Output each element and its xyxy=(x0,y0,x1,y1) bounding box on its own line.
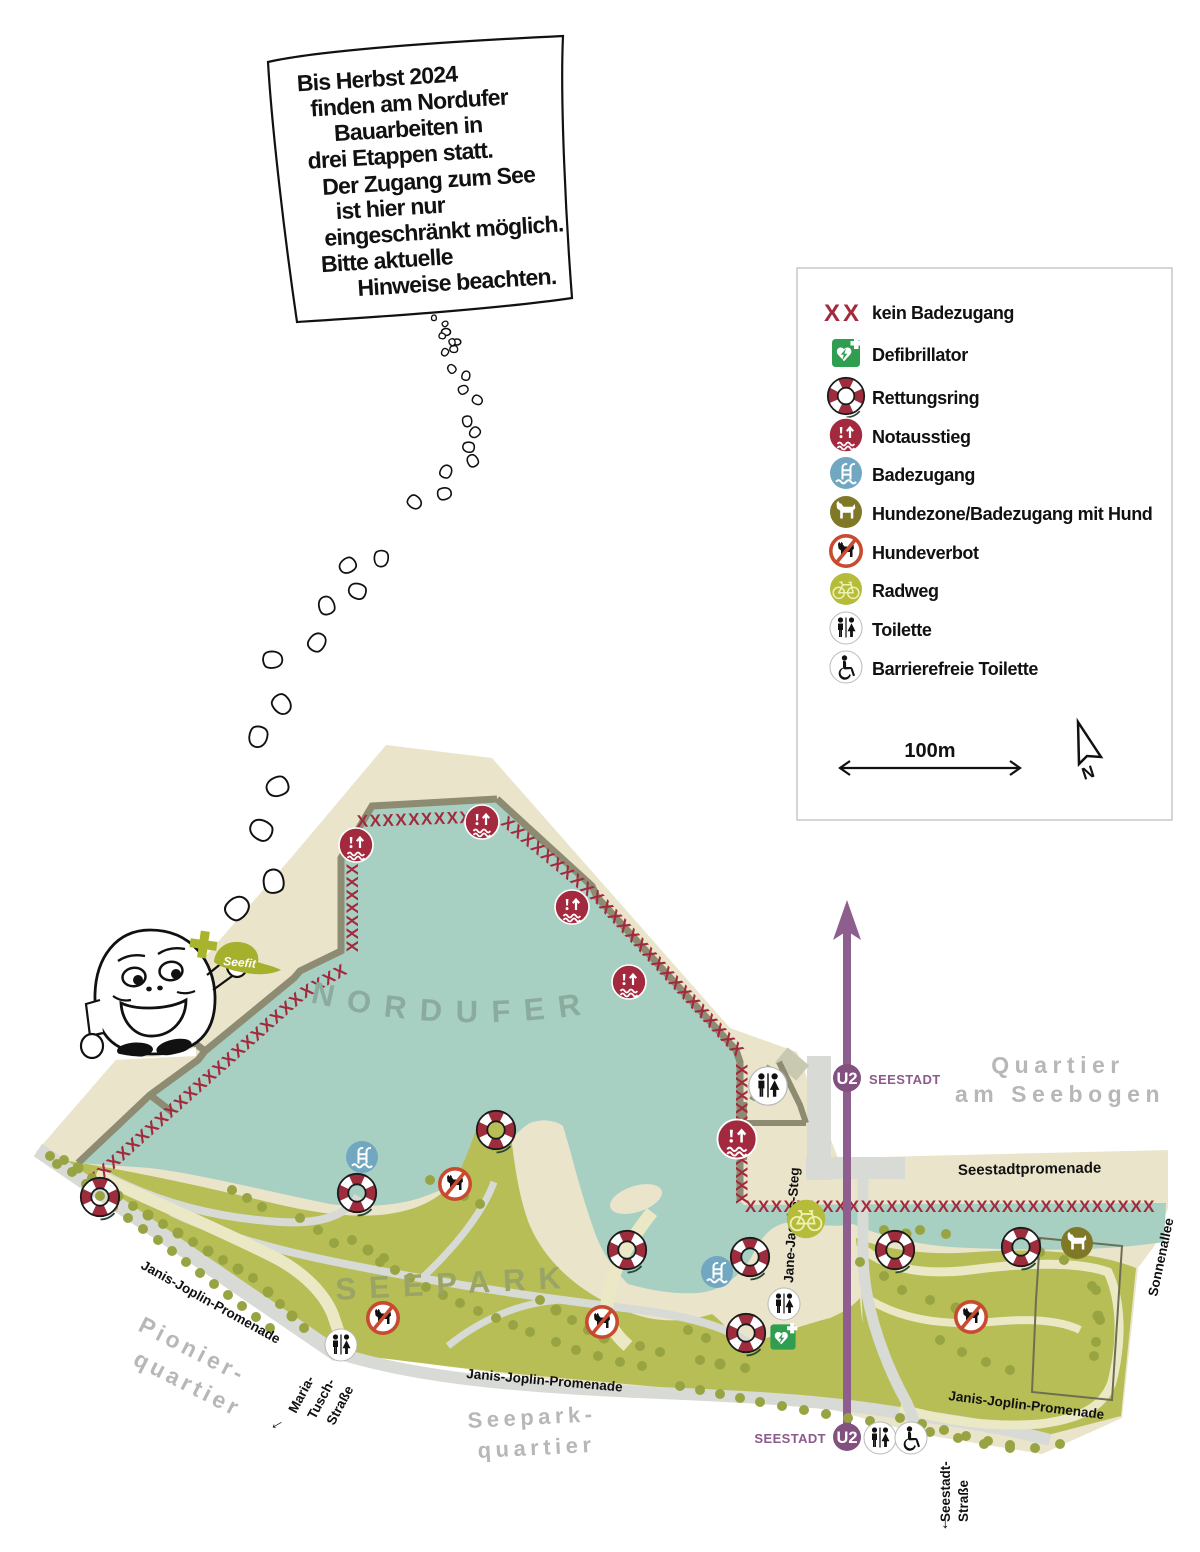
svg-text:Badezugang: Badezugang xyxy=(872,465,975,485)
svg-text:Quartier: Quartier xyxy=(991,1052,1124,1078)
svg-text:Radweg: Radweg xyxy=(872,581,939,601)
svg-text:SEESTADT: SEESTADT xyxy=(754,1431,826,1446)
svg-text:kein Badezugang: kein Badezugang xyxy=(872,303,1014,323)
svg-text:Straße: Straße xyxy=(956,1479,971,1522)
svg-text:X: X xyxy=(824,300,840,327)
svg-text:Barrierefreie Toilette: Barrierefreie Toilette xyxy=(872,659,1038,679)
svg-text:Hundezone/Badezugang mit Hund: Hundezone/Badezugang mit Hund xyxy=(872,504,1152,524)
svg-text:Hundeverbot: Hundeverbot xyxy=(872,543,979,563)
svg-text:Rettungsring: Rettungsring xyxy=(872,388,979,408)
svg-text:SEESTADT: SEESTADT xyxy=(869,1072,941,1087)
svg-text:Seefit: Seefit xyxy=(223,954,258,971)
svg-text:am Seebogen: am Seebogen xyxy=(955,1081,1165,1107)
svg-text:Seestadtpromenade: Seestadtpromenade xyxy=(958,1159,1102,1178)
svg-text:Notausstieg: Notausstieg xyxy=(872,427,971,447)
svg-text:X: X xyxy=(843,300,859,327)
svg-text:Toilette: Toilette xyxy=(872,620,932,640)
svg-text:↓: ↓ xyxy=(941,1513,950,1532)
svg-text:Defibrillator: Defibrillator xyxy=(872,345,968,365)
svg-text:100m: 100m xyxy=(904,740,955,762)
